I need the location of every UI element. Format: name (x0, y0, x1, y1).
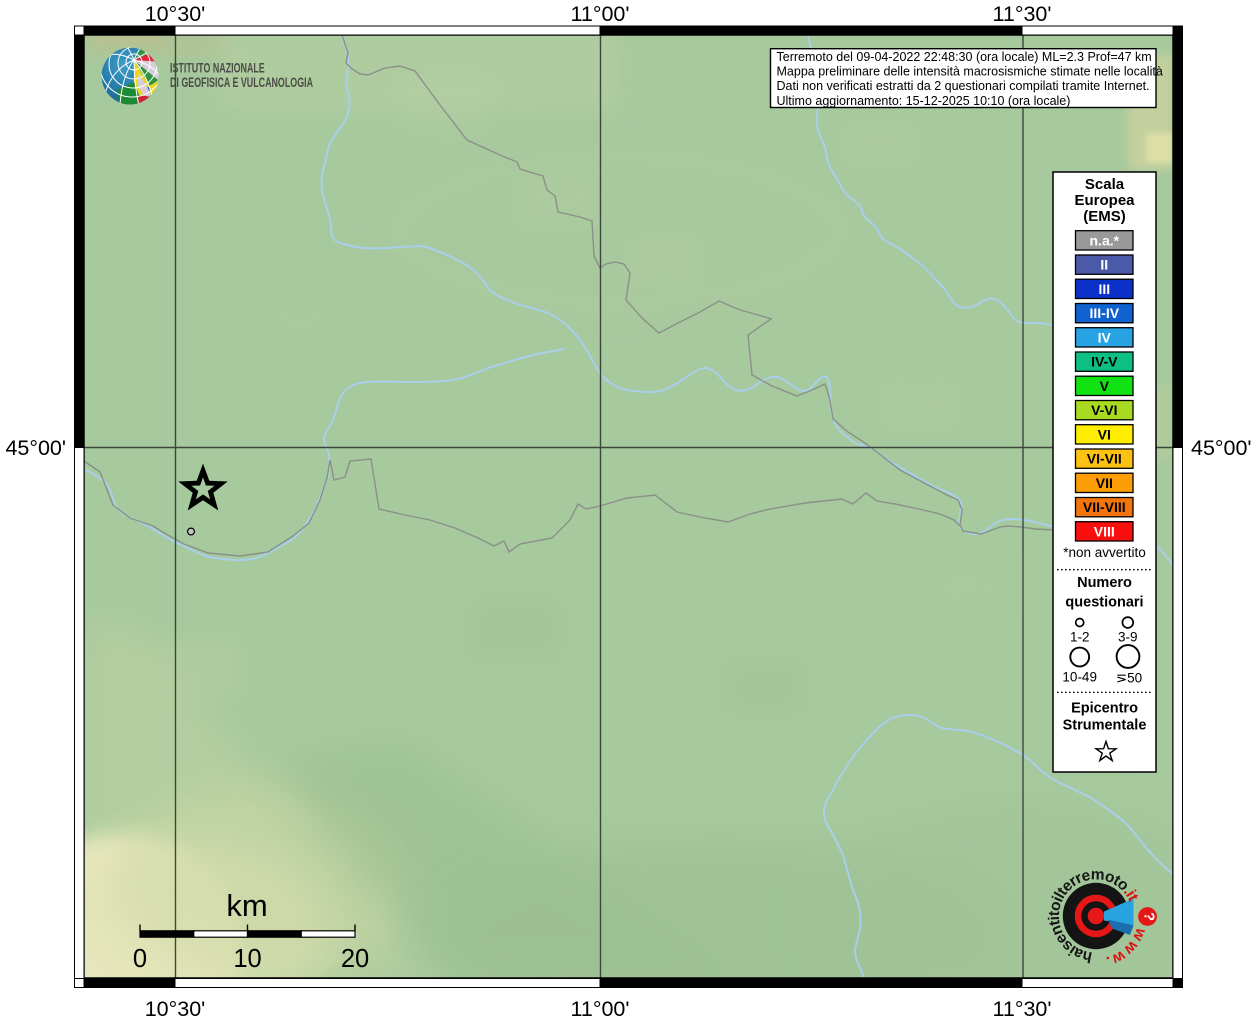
svg-text:Ultimo aggiornamento: 15-12-20: Ultimo aggiornamento: 15-12-2025 10:10 (… (777, 94, 1071, 108)
svg-text:VI-VII: VI-VII (1087, 451, 1122, 467)
svg-text:II: II (1100, 257, 1108, 273)
svg-text:Numero: Numero (1077, 575, 1132, 591)
svg-text:ISTITUTO NAZIONALE: ISTITUTO NAZIONALE (170, 62, 265, 76)
svg-text:DI GEOFISICA E VULCANOLOGIA: DI GEOFISICA E VULCANOLOGIA (170, 76, 313, 90)
svg-text:3-9: 3-9 (1118, 630, 1138, 645)
svg-text:10°30': 10°30' (145, 997, 206, 1021)
svg-text:n.a.*: n.a.* (1090, 232, 1120, 248)
svg-text:III-IV: III-IV (1090, 305, 1120, 321)
svg-text:IV-V: IV-V (1091, 354, 1118, 370)
svg-text:Strumentale: Strumentale (1063, 718, 1147, 734)
svg-text:Dati non verificati estratti d: Dati non verificati estratti da 2 questi… (777, 79, 1150, 93)
svg-text:Epicentro: Epicentro (1071, 701, 1138, 717)
svg-text:10: 10 (233, 945, 261, 973)
svg-text:⋝50: ⋝50 (1116, 671, 1142, 686)
svg-text:(EMS): (EMS) (1083, 208, 1126, 225)
svg-text:VI: VI (1098, 426, 1111, 442)
svg-text:V-VI: V-VI (1091, 402, 1117, 418)
svg-text:11°30': 11°30' (993, 2, 1052, 26)
svg-text:Scala: Scala (1085, 176, 1125, 193)
svg-text:km: km (226, 888, 267, 923)
svg-text:10-49: 10-49 (1062, 670, 1097, 685)
svg-text:0: 0 (133, 945, 147, 973)
svg-text:VIII: VIII (1094, 523, 1115, 539)
svg-text:questionari: questionari (1065, 595, 1143, 611)
svg-text:Mappa preliminare delle intens: Mappa preliminare delle intensità macros… (777, 65, 1163, 79)
svg-text:1-2: 1-2 (1070, 630, 1090, 645)
svg-text:*non avvertito: *non avvertito (1063, 545, 1146, 560)
svg-text:VII: VII (1096, 475, 1113, 491)
svg-text:11°30': 11°30' (993, 997, 1052, 1021)
svg-text:VII-VIII: VII-VIII (1083, 499, 1126, 515)
svg-text:III: III (1098, 281, 1110, 297)
svg-text:45°00': 45°00' (5, 436, 66, 460)
svg-text:10°30': 10°30' (145, 2, 206, 26)
svg-text:11°00': 11°00' (571, 997, 630, 1021)
svg-text:Terremoto del 09-04-2022 22:48: Terremoto del 09-04-2022 22:48:30 (ora l… (777, 50, 1152, 64)
svg-text:20: 20 (341, 945, 369, 973)
svg-text:IV: IV (1098, 329, 1112, 345)
svg-text:45°00': 45°00' (1191, 436, 1252, 460)
svg-text:?: ? (1141, 912, 1157, 921)
svg-text:Europea: Europea (1074, 192, 1135, 209)
svg-text:V: V (1100, 378, 1110, 394)
svg-text:11°00': 11°00' (571, 2, 630, 26)
